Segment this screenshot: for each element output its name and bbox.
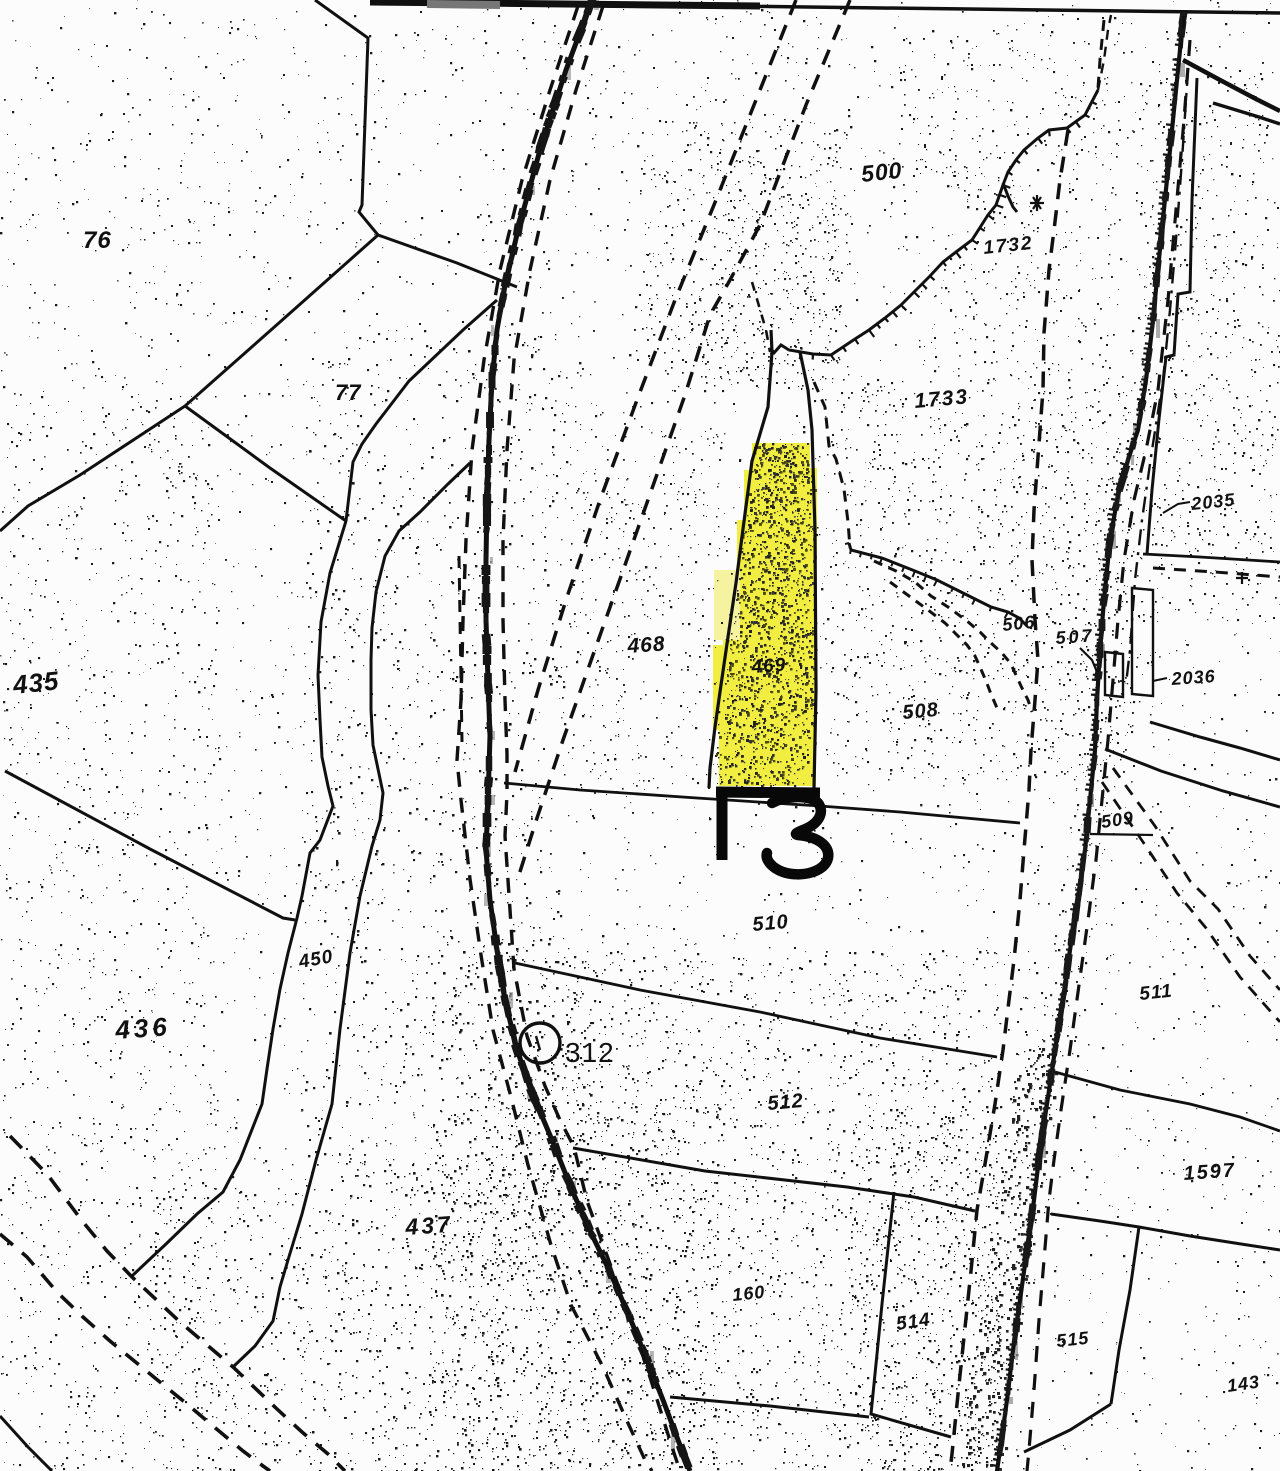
- svg-text:435: 435: [10, 665, 60, 700]
- svg-text:2036: 2036: [1170, 666, 1216, 689]
- svg-text:511: 511: [1138, 981, 1173, 1005]
- svg-text:160: 160: [731, 1282, 766, 1305]
- svg-text:515: 515: [1055, 1328, 1090, 1351]
- svg-text:312: 312: [565, 1037, 615, 1068]
- svg-text:500: 500: [860, 157, 904, 187]
- svg-text:468: 468: [626, 632, 667, 658]
- svg-text:437: 437: [404, 1211, 454, 1240]
- svg-text:76: 76: [83, 227, 112, 254]
- svg-text:469: 469: [750, 655, 787, 678]
- svg-text:77: 77: [335, 380, 362, 405]
- svg-text:512: 512: [767, 1090, 805, 1115]
- svg-text:436: 436: [113, 1011, 171, 1045]
- svg-text:506: 506: [1001, 612, 1036, 635]
- svg-text:510: 510: [752, 911, 790, 936]
- svg-text:1733: 1733: [913, 385, 970, 413]
- svg-text:1597: 1597: [1183, 1159, 1237, 1185]
- svg-text:508: 508: [902, 699, 940, 724]
- svg-text:507: 507: [1055, 625, 1095, 648]
